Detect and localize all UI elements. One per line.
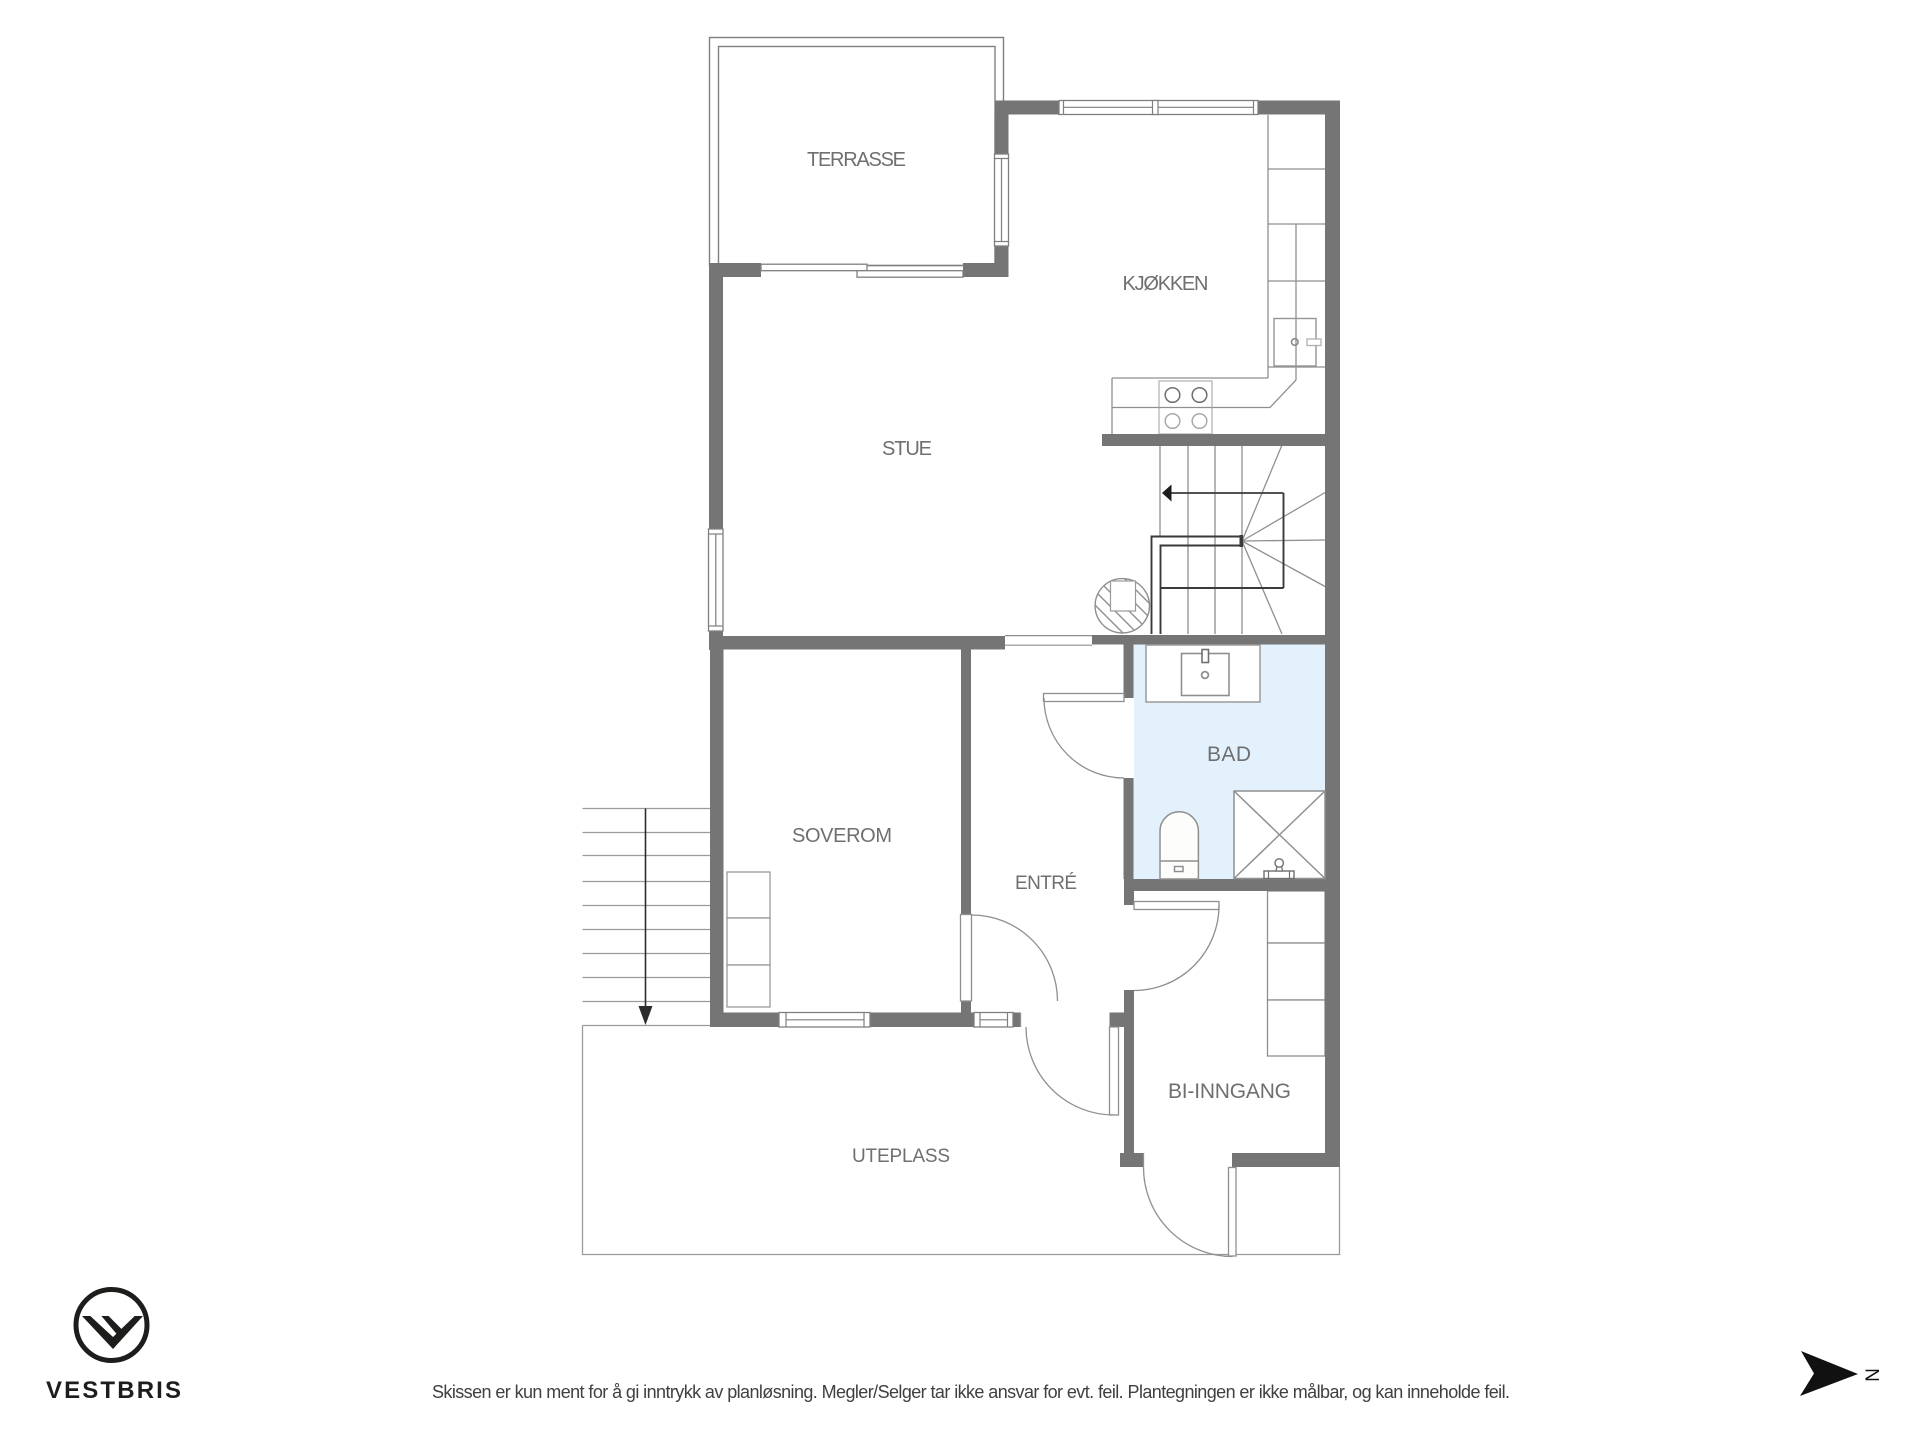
svg-text:TERRASSE: TERRASSE <box>807 149 906 171</box>
svg-text:Skissen er kun ment for å gi i: Skissen er kun ment for å gi inntrykk av… <box>432 1382 1510 1402</box>
svg-text:VESTBRIS: VESTBRIS <box>46 1377 181 1404</box>
svg-text:STUE: STUE <box>882 438 932 460</box>
svg-text:SOVEROM: SOVEROM <box>792 825 892 847</box>
svg-text:KJØKKEN: KJØKKEN <box>1123 273 1209 295</box>
svg-text:ENTRÉ: ENTRÉ <box>1015 873 1077 894</box>
svg-text:BI-INNGANG: BI-INNGANG <box>1168 1080 1291 1103</box>
svg-text:BAD: BAD <box>1207 743 1251 766</box>
svg-text:N: N <box>1860 1368 1881 1382</box>
svg-text:UTEPLASS: UTEPLASS <box>852 1146 950 1167</box>
